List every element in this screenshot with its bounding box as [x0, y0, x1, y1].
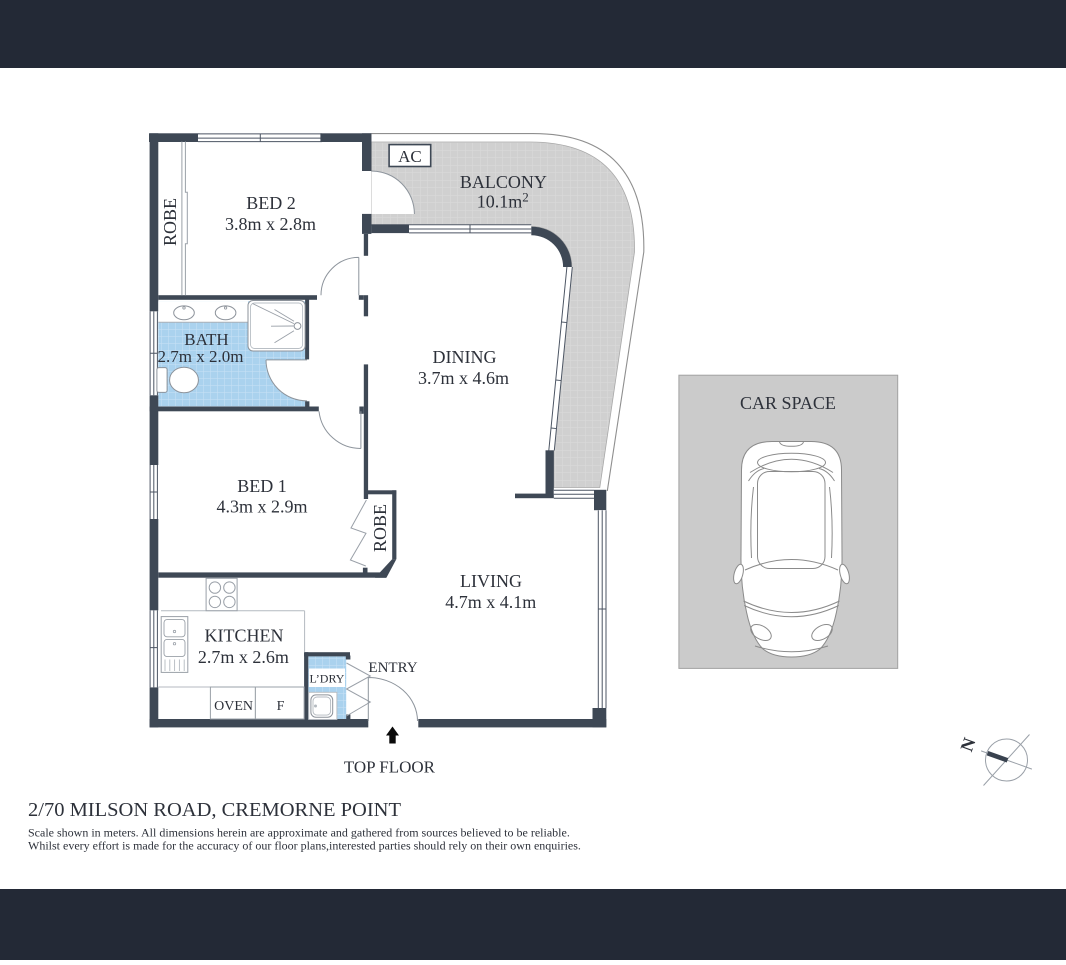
svg-text:3.7m x 4.6m: 3.7m x 4.6m [418, 368, 509, 388]
svg-text:AC: AC [398, 147, 422, 166]
svg-text:LIVING: LIVING [460, 571, 522, 591]
svg-text:BED 1: BED 1 [237, 476, 287, 496]
svg-text:TOP FLOOR: TOP FLOOR [344, 758, 436, 777]
svg-text:OVEN: OVEN [214, 699, 253, 714]
svg-text:4.3m x 2.9m: 4.3m x 2.9m [216, 497, 307, 517]
svg-text:2/70 MILSON ROAD, CREMORNE POI: 2/70 MILSON ROAD, CREMORNE POINT [28, 799, 401, 821]
svg-text:KITCHEN: KITCHEN [205, 626, 284, 646]
svg-text:2.7m x 2.6m: 2.7m x 2.6m [198, 647, 289, 667]
svg-text:Whilst every effort is made fo: Whilst every effort is made for the accu… [28, 839, 581, 853]
svg-text:4.7m x 4.1m: 4.7m x 4.1m [445, 592, 536, 612]
svg-text:ENTRY: ENTRY [368, 660, 417, 676]
svg-text:ROBE: ROBE [160, 198, 180, 246]
svg-text:2.7m x 2.0m: 2.7m x 2.0m [158, 347, 244, 366]
svg-text:L’DRY: L’DRY [310, 672, 345, 686]
svg-text:F: F [277, 699, 285, 714]
svg-text:DINING: DINING [433, 347, 497, 367]
svg-text:ROBE: ROBE [370, 504, 390, 552]
svg-text:CAR SPACE: CAR SPACE [740, 393, 836, 413]
svg-text:3.8m x 2.8m: 3.8m x 2.8m [225, 214, 316, 234]
svg-text:BED 2: BED 2 [246, 193, 296, 213]
svg-text:Scale shown in meters. All dim: Scale shown in meters. All dimensions he… [28, 825, 570, 839]
svg-text:10.1m2: 10.1m2 [477, 190, 529, 212]
svg-text:BALCONY: BALCONY [460, 172, 547, 192]
